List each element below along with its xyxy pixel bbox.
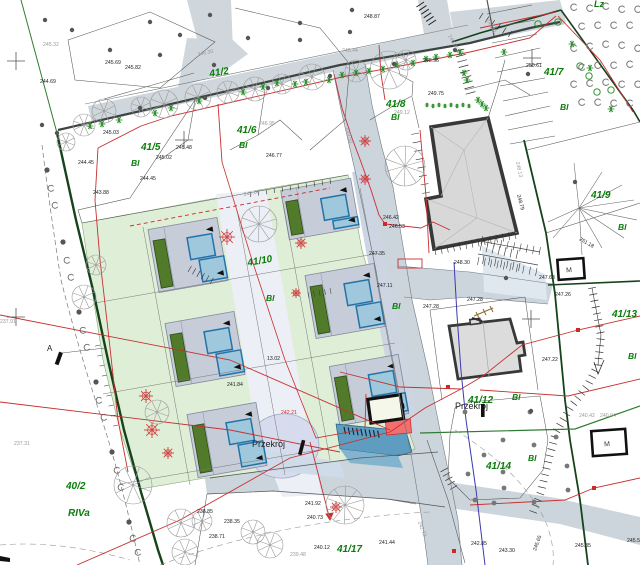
svg-text:Bl: Bl	[560, 102, 569, 112]
svg-text:247.22: 247.22	[542, 357, 558, 363]
svg-text:RIVa: RIVa	[68, 508, 90, 519]
svg-text:247.28: 247.28	[423, 304, 439, 310]
svg-text:244.69: 244.69	[40, 79, 56, 85]
svg-text:Bl: Bl	[628, 351, 637, 361]
svg-text:248.87: 248.87	[364, 14, 380, 20]
svg-text:248.44: 248.44	[342, 48, 358, 54]
svg-text:13.02: 13.02	[267, 356, 280, 362]
svg-text:245.02: 245.02	[156, 155, 172, 161]
svg-text:246.42: 246.42	[383, 215, 399, 221]
svg-text:247.28: 247.28	[467, 297, 483, 303]
svg-text:248.30: 248.30	[454, 260, 470, 266]
svg-text:Bl: Bl	[512, 392, 521, 402]
svg-text:244.45: 244.45	[140, 176, 156, 182]
svg-text:248.96: 248.96	[423, 58, 439, 64]
svg-text:246.53: 246.53	[389, 224, 405, 230]
svg-text:Bl: Bl	[266, 293, 275, 303]
svg-text:247.63: 247.63	[539, 275, 555, 281]
svg-text:249.12: 249.12	[394, 110, 410, 116]
svg-text:41/6: 41/6	[236, 125, 257, 136]
svg-text:246.95: 246.95	[259, 121, 275, 127]
svg-text:Bl: Bl	[528, 453, 537, 463]
svg-text:238.71: 238.71	[209, 534, 225, 540]
svg-text:240.73: 240.73	[307, 515, 323, 521]
svg-text:247.26: 247.26	[555, 292, 571, 298]
svg-text:245.55: 245.55	[627, 538, 640, 544]
svg-text:243.30: 243.30	[499, 548, 515, 554]
svg-text:237.91: 237.91	[0, 319, 16, 325]
svg-text:241.84: 241.84	[227, 382, 243, 388]
svg-text:Bl: Bl	[618, 222, 627, 232]
svg-text:240.42: 240.42	[579, 413, 595, 419]
svg-text:245.48: 245.48	[176, 145, 192, 151]
svg-text:242.85: 242.85	[471, 541, 487, 547]
svg-text:238.35: 238.35	[224, 519, 240, 525]
svg-text:41/13: 41/13	[611, 309, 637, 320]
svg-text:41/7: 41/7	[543, 67, 564, 78]
svg-text:Bl: Bl	[131, 158, 140, 168]
svg-text:239.48: 239.48	[290, 552, 306, 558]
svg-text:249.75: 249.75	[428, 91, 444, 97]
svg-text:238.85: 238.85	[197, 509, 213, 515]
svg-text:245.32: 245.32	[43, 42, 59, 48]
svg-text:245.82: 245.82	[125, 65, 141, 71]
svg-text:41/14: 41/14	[485, 461, 511, 472]
svg-text:41/8: 41/8	[385, 99, 406, 110]
svg-text:241.44: 241.44	[379, 540, 395, 546]
svg-text:41/17: 41/17	[336, 544, 362, 555]
svg-text:247.35: 247.35	[369, 251, 385, 257]
svg-text:41/5: 41/5	[140, 142, 161, 153]
svg-text:41/9: 41/9	[590, 190, 611, 201]
svg-text:246.77: 246.77	[266, 153, 282, 159]
svg-text:240.12: 240.12	[314, 545, 330, 551]
svg-text:242.21: 242.21	[281, 410, 297, 416]
svg-text:Bl: Bl	[239, 140, 248, 150]
svg-text:243.88: 243.88	[93, 190, 109, 196]
svg-text:237.31: 237.31	[14, 441, 30, 447]
svg-text:250.61: 250.61	[526, 63, 542, 69]
svg-text:244.45: 244.45	[78, 160, 94, 166]
svg-text:A: A	[47, 344, 53, 353]
svg-text:240.04: 240.04	[600, 413, 616, 419]
svg-text:Lz: Lz	[594, 0, 604, 9]
svg-text:Bl: Bl	[392, 301, 401, 311]
svg-text:247.11: 247.11	[377, 283, 393, 289]
svg-text:245.03: 245.03	[103, 130, 119, 136]
svg-text:M: M	[604, 441, 610, 448]
svg-text:Przekrój: Przekrój	[252, 439, 285, 449]
svg-text:M: M	[566, 267, 572, 274]
svg-text:40/2: 40/2	[65, 481, 86, 492]
svg-text:245.69: 245.69	[105, 60, 121, 66]
svg-text:241.92: 241.92	[305, 501, 321, 507]
svg-text:245.35: 245.35	[575, 543, 591, 549]
